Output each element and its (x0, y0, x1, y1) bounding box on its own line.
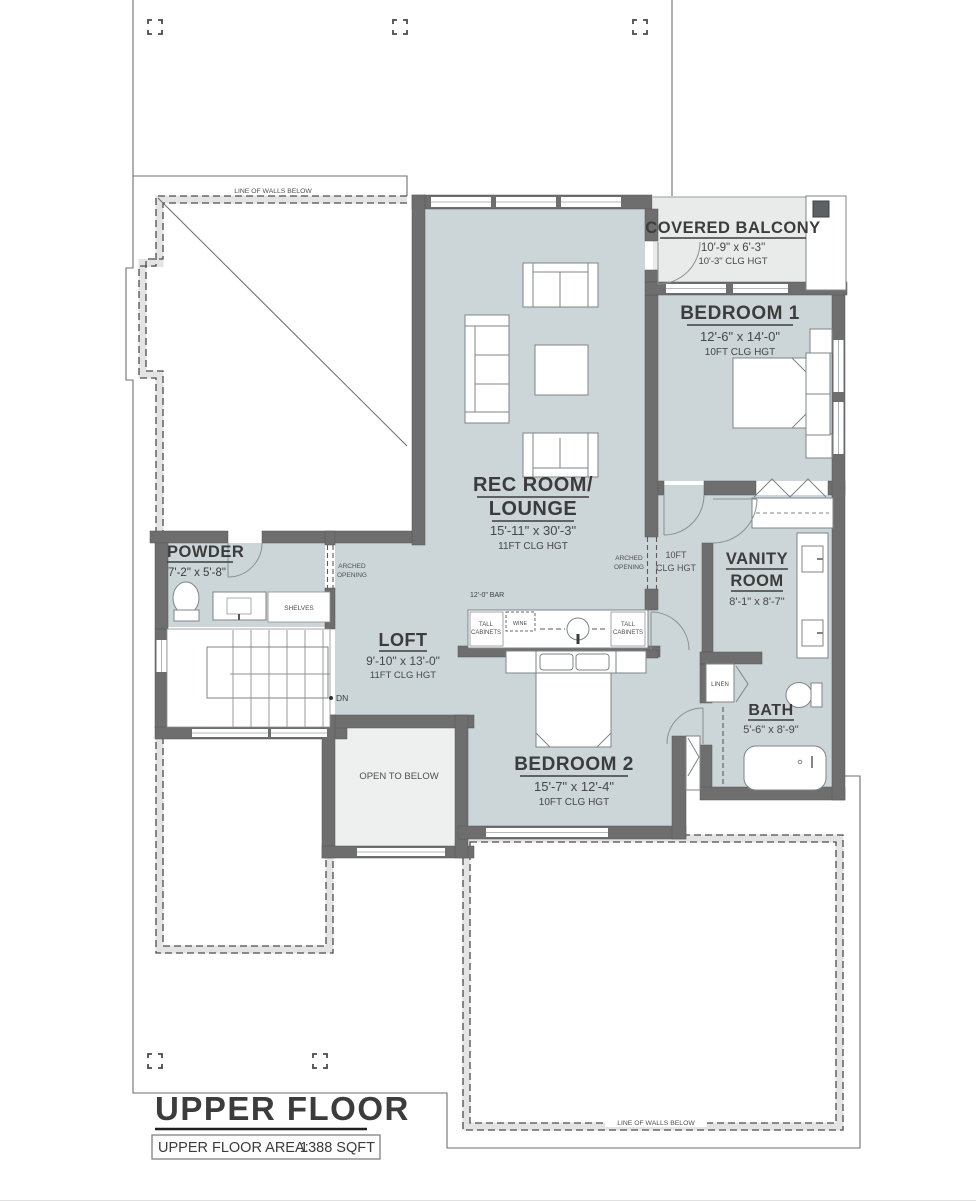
stair-direction-dot (329, 696, 333, 700)
arched-opening-label: ARCHED (338, 563, 366, 570)
nightstand (806, 434, 832, 458)
room-label-bath: BATH (748, 702, 793, 719)
room-ceiling-covered-balcony: 10'-3" CLG HGT (698, 256, 767, 267)
loveseat-top (523, 263, 598, 307)
wall-segment (645, 650, 658, 658)
tall-cabinets-left (470, 612, 503, 646)
sheet-title: UPPER FLOOR (155, 1090, 410, 1127)
wall-segment (702, 543, 713, 652)
wall-segment (645, 295, 658, 537)
balcony-post (813, 201, 829, 217)
bed2-mattress (536, 673, 611, 747)
wall-segment (704, 481, 756, 495)
toilet-tank (174, 610, 199, 621)
room-label-bedroom1: BEDROOM 1 (680, 303, 800, 324)
nightstand (810, 329, 832, 353)
room-dims-covered-balcony: 10'-9" x 6'-3" (701, 242, 765, 254)
registration-mark (148, 20, 162, 34)
tall-cabinets-label: TALL (621, 622, 636, 628)
registration-mark (393, 20, 407, 34)
tall-cabinets-right (611, 612, 645, 646)
room-label-vanity-line1: VANITY (726, 550, 788, 568)
tall-cabinets-label: CABINETS (471, 630, 501, 636)
room-label-loft: LOFT (379, 630, 428, 650)
area-label: UPPER FLOOR AREA: (158, 1140, 309, 1156)
line-of-walls-below-label-bottom: LINE OF WALLS BELOW (617, 1120, 695, 1127)
wall-segment (262, 531, 412, 543)
hall-ceiling-line1: 10FT (665, 550, 687, 560)
room-dims-rec-room: 15'-11" x 30'-3" (490, 523, 577, 538)
arched-opening-label: OPENING (337, 572, 367, 579)
room-ceiling-bedroom2: 10FT CLG HGT (539, 797, 609, 808)
walls-below-outline-bottom: LINE OF WALLS BELOW (463, 835, 843, 1130)
bedroom2-closet (686, 736, 700, 790)
nightstand (506, 651, 536, 673)
wall-segment (700, 745, 712, 790)
room-dims-bath: 5'-6" x 8'-9" (743, 724, 799, 736)
title-block: UPPER FLOOR UPPER FLOOR AREA: 1388 SQFT (152, 1090, 410, 1159)
floor-plan-sheet: LINE OF WALLS BELOW LINE OF WALLS BELOW (0, 0, 976, 1201)
room-label-covered-balcony: COVERED BALCONY (645, 219, 820, 237)
bar-label: 12'-0" BAR (470, 592, 504, 599)
pillow (540, 654, 573, 670)
room-ceiling-bedroom1: 10FT CLG HGT (705, 347, 775, 358)
tall-cabinets-label: CABINETS (613, 630, 643, 636)
nightstand (616, 651, 646, 673)
room-label-vanity-line2: ROOM (730, 572, 783, 590)
room-label-bedroom2: BEDROOM 2 (514, 754, 634, 775)
registration-mark (148, 1054, 162, 1068)
wall-segment (658, 481, 664, 495)
wall-segment (645, 270, 658, 282)
loveseat-bottom (523, 433, 598, 477)
registration-mark (633, 20, 647, 34)
pillow (576, 654, 609, 670)
floor-plan-drawing: LINE OF WALLS BELOW LINE OF WALLS BELOW (0, 0, 976, 1200)
open-to-below-floor (335, 727, 455, 846)
toilet-bowl (173, 582, 199, 614)
wall-segment (700, 652, 762, 664)
room-label-rec-room-line2: LOUNGE (489, 498, 578, 520)
wall-segment (322, 715, 474, 728)
linen-label: LINEN (711, 682, 729, 688)
coffee-table (535, 345, 588, 395)
wall-segment (150, 531, 228, 543)
bedroom1-closet (752, 479, 833, 528)
tall-cabinets-label: TALL (479, 622, 494, 628)
arched-opening-label: ARCHED (615, 555, 643, 562)
hall-ceiling-line2: CLG HGT (656, 563, 697, 573)
roof-outline-top-left: LINE OF WALLS BELOW (139, 188, 407, 536)
toilet-tank (811, 683, 822, 707)
room-dims-bedroom1: 12'-6" x 14'-0" (700, 329, 780, 344)
balcony-floor (653, 197, 806, 284)
room-ceiling-rec-room: 11FT CLG HGT (498, 541, 568, 552)
staircase: DN (167, 629, 348, 727)
room-dims-powder: 7'-2" x 5'-8" (168, 567, 226, 579)
wall-segment (325, 531, 335, 545)
roof-outline-bottom-left (156, 730, 333, 953)
room-dims-vanity: 8'-1" x 8'-7" (729, 596, 785, 608)
room-label-open-to-below: OPEN TO BELOW (359, 771, 438, 782)
stair-down-label: DN (336, 693, 348, 703)
bed1-mattress (733, 358, 806, 428)
room-dims-loft: 9'-10" x 13'-0" (366, 654, 440, 668)
wine-label: WINE (513, 621, 528, 627)
bathtub (744, 746, 826, 790)
line-of-walls-below-label-top: LINE OF WALLS BELOW (234, 188, 312, 195)
wall-segment (412, 195, 425, 545)
bifold-doors (754, 479, 826, 497)
room-label-rec-room-line1: REC ROOM/ (473, 474, 593, 496)
room-ceiling-loft: 11FT CLG HGT (370, 670, 436, 681)
registration-mark (313, 1054, 327, 1068)
wall-segment (645, 589, 658, 610)
arched-opening-label: OPENING (614, 564, 644, 571)
wall-segment (672, 736, 686, 839)
sofa-left (465, 315, 509, 423)
room-label-powder: POWDER (167, 543, 244, 561)
vanity-fixtures (797, 533, 828, 658)
area-value: 1388 SQFT (300, 1140, 375, 1156)
room-dims-bedroom2: 15'-7" x 12'-4" (534, 779, 614, 794)
shelves-label: SHELVES (284, 605, 314, 612)
